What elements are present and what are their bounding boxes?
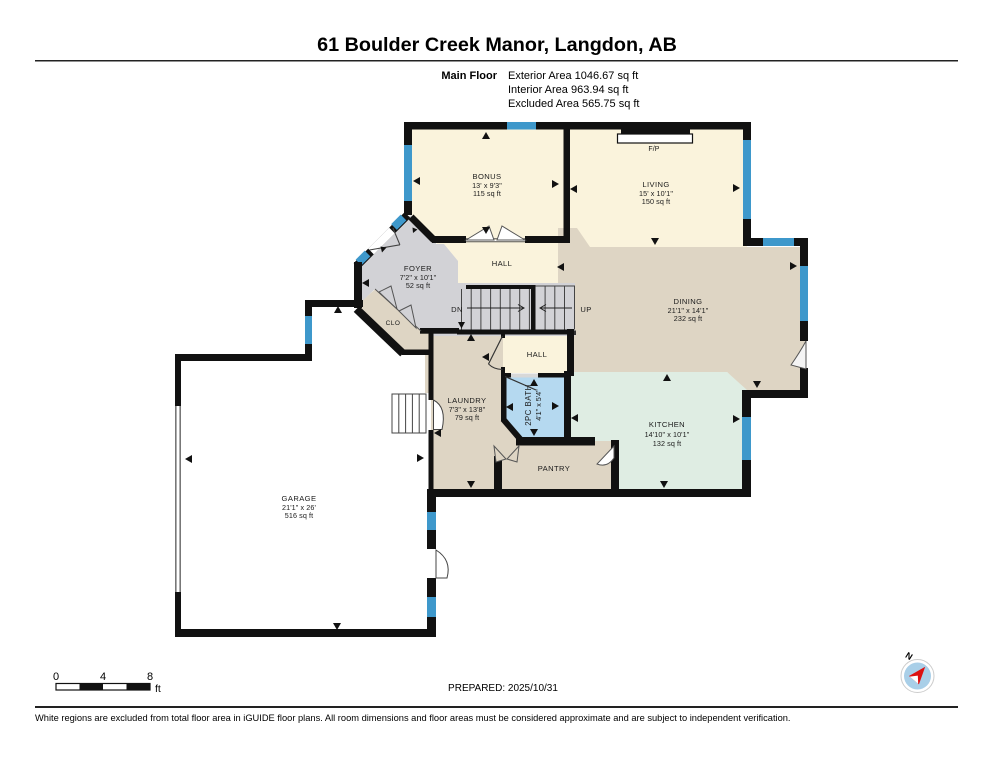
svg-text:GARAGE: GARAGE bbox=[282, 494, 317, 503]
svg-text:Excluded Area 565.75 sq ft: Excluded Area 565.75 sq ft bbox=[508, 98, 639, 110]
svg-text:4: 4 bbox=[100, 671, 106, 683]
svg-text:F/P: F/P bbox=[648, 146, 659, 153]
svg-text:Interior Area 963.94 sq ft: Interior Area 963.94 sq ft bbox=[508, 84, 628, 96]
svg-text:61 Boulder Creek Manor, Langdo: 61 Boulder Creek Manor, Langdon, AB bbox=[317, 34, 677, 56]
svg-text:8: 8 bbox=[147, 671, 153, 683]
svg-text:BONUS: BONUS bbox=[472, 172, 501, 181]
svg-text:132 sq ft: 132 sq ft bbox=[653, 439, 681, 448]
svg-text:White regions are excluded fro: White regions are excluded from total fl… bbox=[35, 713, 791, 723]
svg-text:HALL: HALL bbox=[527, 350, 548, 359]
svg-text:LAUNDRY: LAUNDRY bbox=[448, 396, 487, 405]
svg-text:Exterior Area 1046.67 sq ft: Exterior Area 1046.67 sq ft bbox=[508, 70, 638, 82]
svg-text:0: 0 bbox=[53, 671, 59, 683]
svg-text:FOYER: FOYER bbox=[404, 264, 432, 273]
svg-text:150 sq ft: 150 sq ft bbox=[642, 197, 670, 206]
svg-text:DN: DN bbox=[451, 305, 463, 314]
svg-text:52 sq ft: 52 sq ft bbox=[406, 281, 430, 290]
svg-text:PREPARED: 2025/10/31: PREPARED: 2025/10/31 bbox=[448, 683, 558, 694]
svg-text:LIVING: LIVING bbox=[642, 180, 669, 189]
svg-text:DINING: DINING bbox=[674, 297, 703, 306]
svg-text:KITCHEN: KITCHEN bbox=[649, 420, 685, 429]
svg-text:4'1" x 5'4": 4'1" x 5'4" bbox=[534, 389, 543, 421]
svg-text:79 sq ft: 79 sq ft bbox=[455, 413, 479, 422]
svg-text:UP: UP bbox=[580, 305, 591, 314]
svg-text:232 sq ft: 232 sq ft bbox=[674, 314, 702, 323]
svg-text:PANTRY: PANTRY bbox=[538, 464, 571, 473]
svg-text:115 sq ft: 115 sq ft bbox=[473, 189, 501, 198]
svg-text:HALL: HALL bbox=[492, 259, 513, 268]
svg-text:ft: ft bbox=[155, 683, 161, 695]
svg-text:Main Floor: Main Floor bbox=[441, 70, 497, 82]
svg-text:516 sq ft: 516 sq ft bbox=[285, 511, 313, 520]
svg-text:2PC BATH: 2PC BATH bbox=[524, 384, 533, 426]
svg-text:CLO: CLO bbox=[386, 320, 401, 327]
svg-text:14'10" x 10'1": 14'10" x 10'1" bbox=[645, 430, 690, 439]
